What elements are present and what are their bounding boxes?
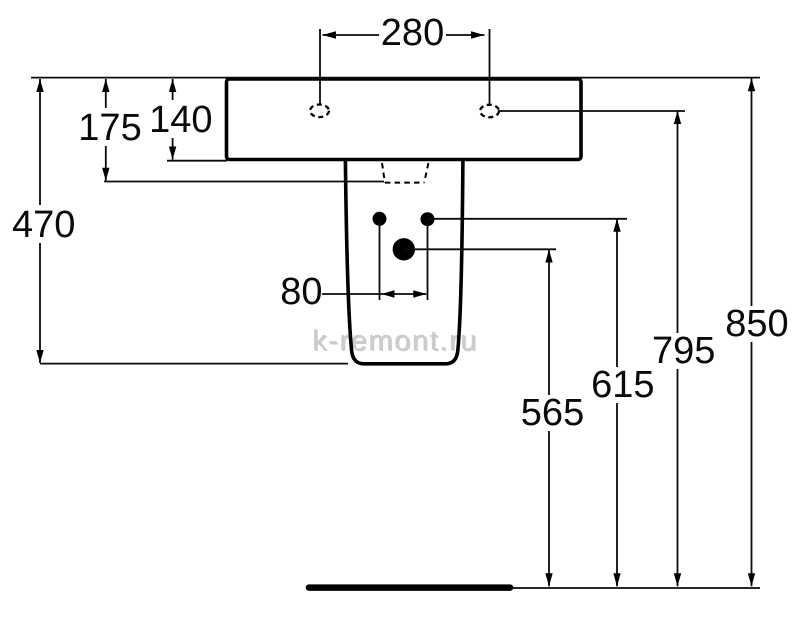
svg-text:850: 850 — [725, 303, 788, 345]
svg-text:280: 280 — [381, 12, 444, 54]
svg-text:175: 175 — [78, 107, 141, 149]
svg-text:140: 140 — [149, 99, 212, 141]
svg-text:565: 565 — [521, 392, 584, 434]
svg-text:795: 795 — [652, 330, 715, 372]
svg-text:615: 615 — [591, 364, 654, 406]
svg-text:k-remont.ru: k-remont.ru — [312, 325, 478, 357]
svg-text:80: 80 — [280, 271, 322, 313]
svg-text:470: 470 — [12, 204, 75, 246]
